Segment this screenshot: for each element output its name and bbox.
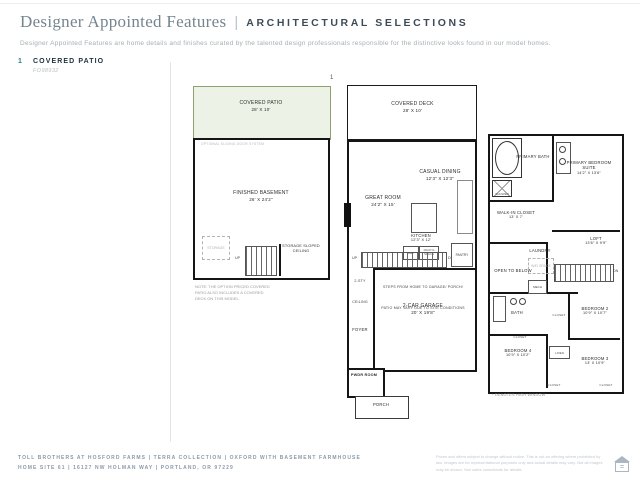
room-name: OPEN TO BELOW (492, 268, 534, 273)
ceiling-note: 2-STY CEILING (347, 268, 373, 310)
feature-code: FO98932 (33, 68, 59, 74)
sink-basin (519, 298, 526, 305)
shower-stall: SHOWER (492, 180, 512, 197)
room-dims: 12'3" X 12' (395, 238, 447, 243)
pantry-label: PANTRY (456, 253, 469, 257)
room-dims: 28' X 10' (347, 108, 478, 114)
upper-floor-plan: SHOWER PRIMARY BATH PRIMARY BEDROOM SUIT… (488, 134, 625, 400)
bath-label: BATH (502, 310, 532, 315)
room-name: PRIMARY BATH (514, 154, 552, 159)
up-label: UP (352, 256, 357, 260)
vertical-divider (170, 62, 171, 442)
sink-basin (510, 298, 517, 305)
room-dims: 13' X 10'9" (572, 361, 618, 366)
room-name: LAUNDRY (522, 248, 558, 253)
fireplace (344, 203, 351, 227)
interior-wall (552, 230, 620, 232)
page-header: Designer Appointed Features|ARCHITECTURA… (20, 12, 468, 32)
primary-bedroom-label: PRIMARY BEDROOM SUITE 14'2" X 13'6" (560, 160, 618, 176)
note-text: 2-STY CEILING (352, 279, 368, 304)
feature-marker: 1 (330, 75, 333, 81)
sink-basin (559, 146, 566, 153)
interior-wall (490, 200, 552, 202)
covered-deck-label: COVERED DECK 28' X 10' (347, 101, 478, 113)
basement-stairs (245, 246, 277, 276)
feature-label: COVERED PATIO (33, 58, 104, 65)
upper-stairs (554, 264, 614, 282)
top-divider (0, 3, 640, 4)
covered-patio-area (193, 86, 331, 140)
interior-wall (568, 292, 570, 340)
room-name: FOYER (347, 327, 373, 332)
page-title: Designer Appointed Features (20, 12, 226, 31)
footer-address-line: HOME SITE 61 | 16127 NW HOLMAN WAY | POR… (18, 465, 234, 471)
feature-number: 1 (18, 58, 22, 65)
closet-label: CLOSET (550, 302, 568, 323)
kitchen-label: KITCHEN 12'3" X 12' (395, 233, 447, 243)
great-room-label: GREAT ROOM 24'2" X 15' (353, 195, 413, 207)
finished-basement-label: FINISHED BASEMENT 26' X 24'2" (193, 190, 329, 202)
interior-wall (552, 136, 554, 202)
wd-label: W/D SPACE (531, 264, 551, 268)
storage-sloped-label: STORAGE SLOPED CEILING (281, 244, 321, 254)
mech-room: MECH (528, 280, 547, 294)
bedroom4-label: BEDROOM 4 10'9" X 10'2" (492, 348, 544, 358)
closet-label: CLOSET (596, 372, 616, 393)
room-dims: 24'2" X 15' (353, 202, 413, 208)
interior-wall (568, 338, 620, 340)
room-dims: 13' X 7' (492, 215, 540, 220)
main-floor-plan: COVERED DECK 28' X 10' CASUAL DINING 12'… (347, 85, 478, 425)
dn-label: DN (613, 269, 618, 273)
linen-label: LINEN (555, 351, 564, 355)
up-label: UP (235, 256, 240, 260)
storage-label: STORAGE (207, 246, 225, 250)
page-subtitle: ARCHITECTURAL SELECTIONS (246, 17, 468, 29)
footer-disclaimer: Prices and offers subject to change with… (436, 454, 604, 473)
interior-wall (490, 242, 546, 244)
footer-community-line: TOLL BROTHERS AT HOSFORD FARMS | TERRA C… (18, 455, 361, 461)
covered-patio-label: COVERED PATIO 28' X 10' (193, 100, 329, 112)
powder-room-label: PWDR ROOM (347, 373, 381, 378)
closet-text: CLOSET (513, 335, 526, 339)
storage-dashed-area: STORAGE (202, 236, 230, 260)
basement-floor-plan: COVERED PATIO 28' X 10' OPTIONAL SLIDING… (193, 86, 331, 321)
shower-label: SHOWER (495, 192, 509, 196)
closet-text: CLOSET (552, 313, 565, 317)
linen-closet: LINEN (549, 346, 570, 359)
open-to-below-label: OPEN TO BELOW (492, 268, 534, 273)
kitchen-counter (457, 180, 473, 234)
foyer-label: FOYER (347, 327, 373, 332)
loft-label: LOFT 13'6" X 9'9" (574, 236, 618, 246)
sliding-door-note: OPTIONAL SLIDING DOOR SYSTEM (201, 142, 264, 146)
walk-in-closet-label: WALK-IN CLOSET 13' X 7' (492, 210, 540, 220)
room-dims: 10'9" X 10'7" (572, 311, 618, 316)
basement-note: NOTE: THE OPTION PRICED COVERED PATIO AL… (195, 284, 273, 302)
room-name: PORCH (355, 402, 407, 407)
room-name: STORAGE SLOPED CEILING (281, 244, 321, 254)
equal-housing-body: = (615, 462, 629, 472)
room-dims: 10'9" X 10'2" (492, 353, 544, 358)
equal-housing-icon: = (613, 456, 631, 473)
header-description: Designer Appointed Features are home det… (20, 40, 551, 47)
room-dims: 26' X 24'2" (193, 197, 329, 203)
room-name: PRIMARY BEDROOM SUITE (560, 160, 618, 171)
laundry-label: LAUNDRY (522, 248, 558, 253)
closet-text: CLOSET (599, 383, 612, 387)
primary-bath-label: PRIMARY BATH (514, 154, 552, 159)
bedroom2-label: BEDROOM 2 10'9" X 10'7" (572, 306, 618, 316)
storage-wall (279, 244, 281, 276)
room-dims: 14'2" X 13'6" (560, 171, 618, 176)
porch-outline (355, 396, 409, 419)
pantry-room: PANTRY (451, 243, 473, 267)
closet-text: CLOSET (547, 383, 560, 387)
bedroom3-label: BEDROOM 3 13' X 10'9" (572, 356, 618, 366)
room-name: BATH (502, 310, 532, 315)
kitchen-island (411, 203, 437, 233)
hall-bath-tub (493, 296, 506, 322)
room-dims: 20' X 19'8" (379, 310, 467, 316)
brochure-page: Designer Appointed Features|ARCHITECTURA… (0, 0, 640, 494)
title-divider: | (234, 14, 238, 31)
main-stairs (361, 252, 447, 268)
room-dims: 28' X 10' (193, 107, 329, 113)
high-window-note: * DENOTES HIGH WINDOW (492, 393, 545, 397)
porch-label: PORCH (355, 402, 407, 407)
closet-label: CLOSET (544, 372, 564, 393)
room-dims: 13'6" X 9'9" (574, 241, 618, 246)
garage-label: 2-CAR GARAGE 20' X 19'8" (379, 303, 467, 315)
room-name: PWDR ROOM (347, 373, 381, 378)
closet-label: CLOSET (510, 324, 530, 345)
mech-label: MECH (533, 285, 542, 289)
